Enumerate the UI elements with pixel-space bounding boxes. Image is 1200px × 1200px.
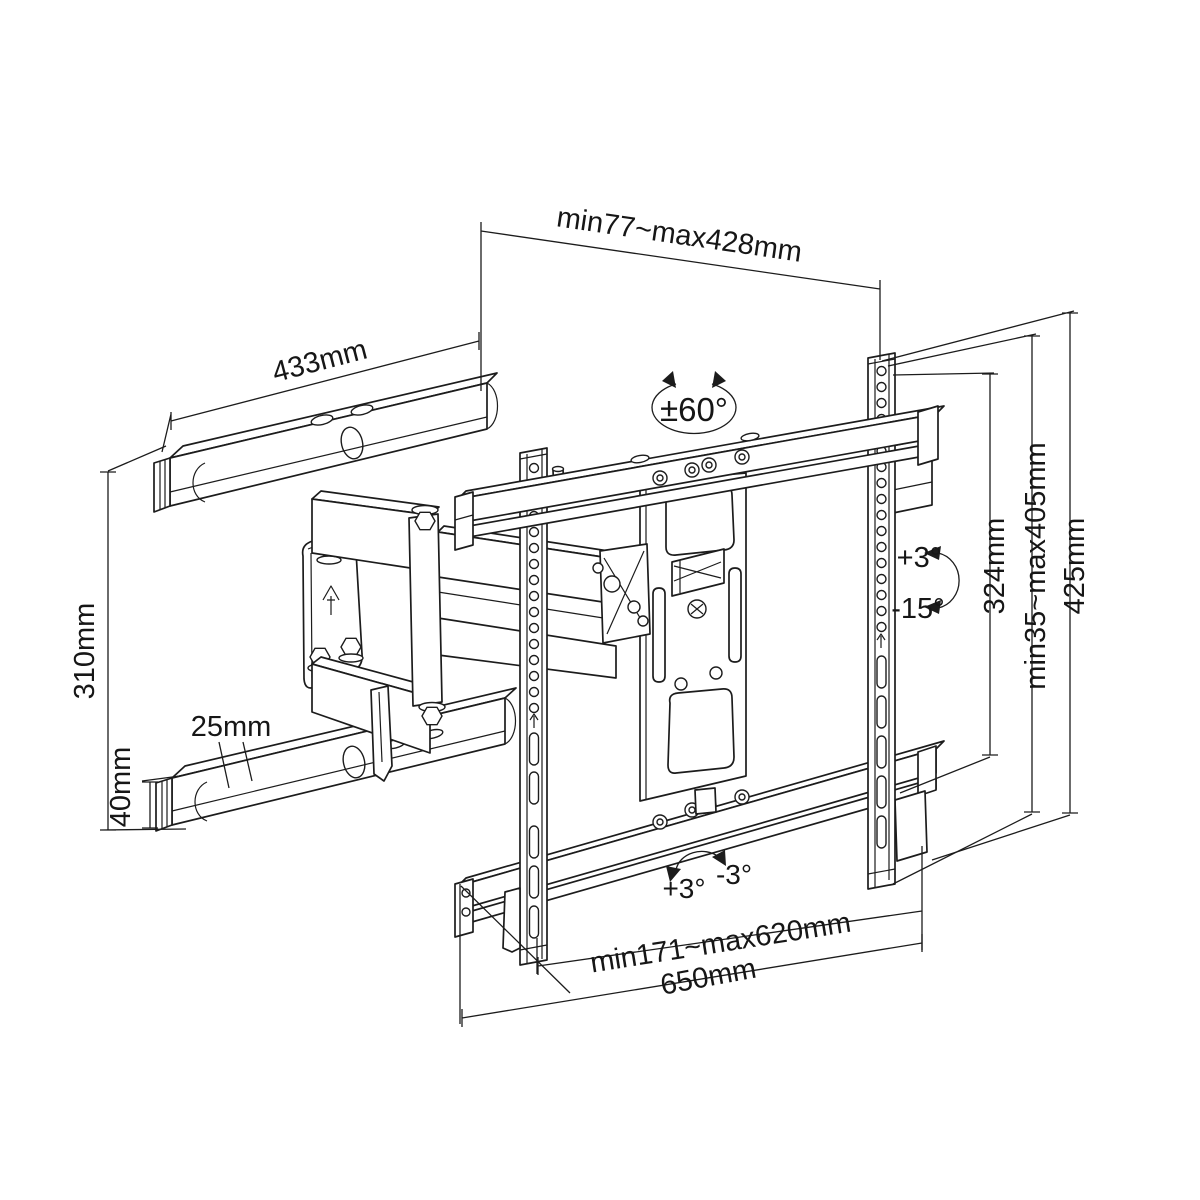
arm-pivot-link (409, 514, 442, 706)
tilt-down-label: -15° (891, 593, 945, 625)
wall-plate-height-label: 310mm (69, 603, 101, 700)
depth-range-label: min77~max428mm (555, 201, 804, 268)
arm-offset-label: 25mm (191, 711, 272, 743)
swivel-annotation: ±60° (652, 371, 736, 433)
dimension-depth-range: min77~max428mm (481, 201, 880, 391)
bottom-wall-rail-rightcap (505, 698, 516, 744)
adjust-bolt-head (553, 467, 564, 472)
hex-bolt (415, 512, 435, 529)
vesa-plate (640, 473, 746, 814)
bottom-tv-rail-right-end (918, 746, 936, 796)
left-rail-slots (530, 733, 539, 938)
level-plus-label: +3° (662, 873, 705, 904)
vesa-slot-right (729, 568, 741, 662)
wall-rail-height-label: 40mm (105, 747, 137, 828)
hex-bolt (341, 638, 361, 655)
right-rail-holes (877, 367, 886, 632)
top-tv-rail-endblock (455, 492, 473, 550)
tilt-annotation: +3° -15° (891, 542, 959, 625)
left-rail-hook (503, 888, 520, 952)
vertical-adjust-label: min35~max405mm (1020, 442, 1052, 689)
hex-bolt (422, 707, 442, 724)
tv-wall-mount-drawing: min77~max428mm 433mm ±60° 310mm 40mm 25m… (0, 0, 1200, 1200)
technical-drawing-page: min77~max428mm 433mm ±60° 310mm 40mm 25m… (0, 0, 1200, 1200)
safety-latch (371, 686, 392, 781)
vesa-bottom-cutout (668, 689, 734, 773)
level-minus-label: -3° (716, 859, 752, 890)
top-wall-rail-rightcap (487, 383, 498, 429)
top-tv-rail-right-end (918, 406, 938, 465)
wall-rail-length-label: 433mm (269, 334, 371, 389)
bottom-wall-rail-endcap (156, 778, 172, 831)
tilt-up-label: +3° (897, 542, 942, 574)
top-wall-rail-endcap (154, 458, 170, 512)
rail-column-height-label: 324mm (979, 518, 1011, 615)
right-rail-slots (877, 656, 886, 848)
total-height-label: 425mm (1059, 518, 1091, 615)
swivel-range-label: ±60° (660, 391, 728, 428)
bolt-washer (339, 654, 363, 662)
tilt-bracket (593, 544, 650, 643)
vesa-slot-left (653, 588, 665, 682)
vesa-bottom-hinge (695, 788, 716, 814)
